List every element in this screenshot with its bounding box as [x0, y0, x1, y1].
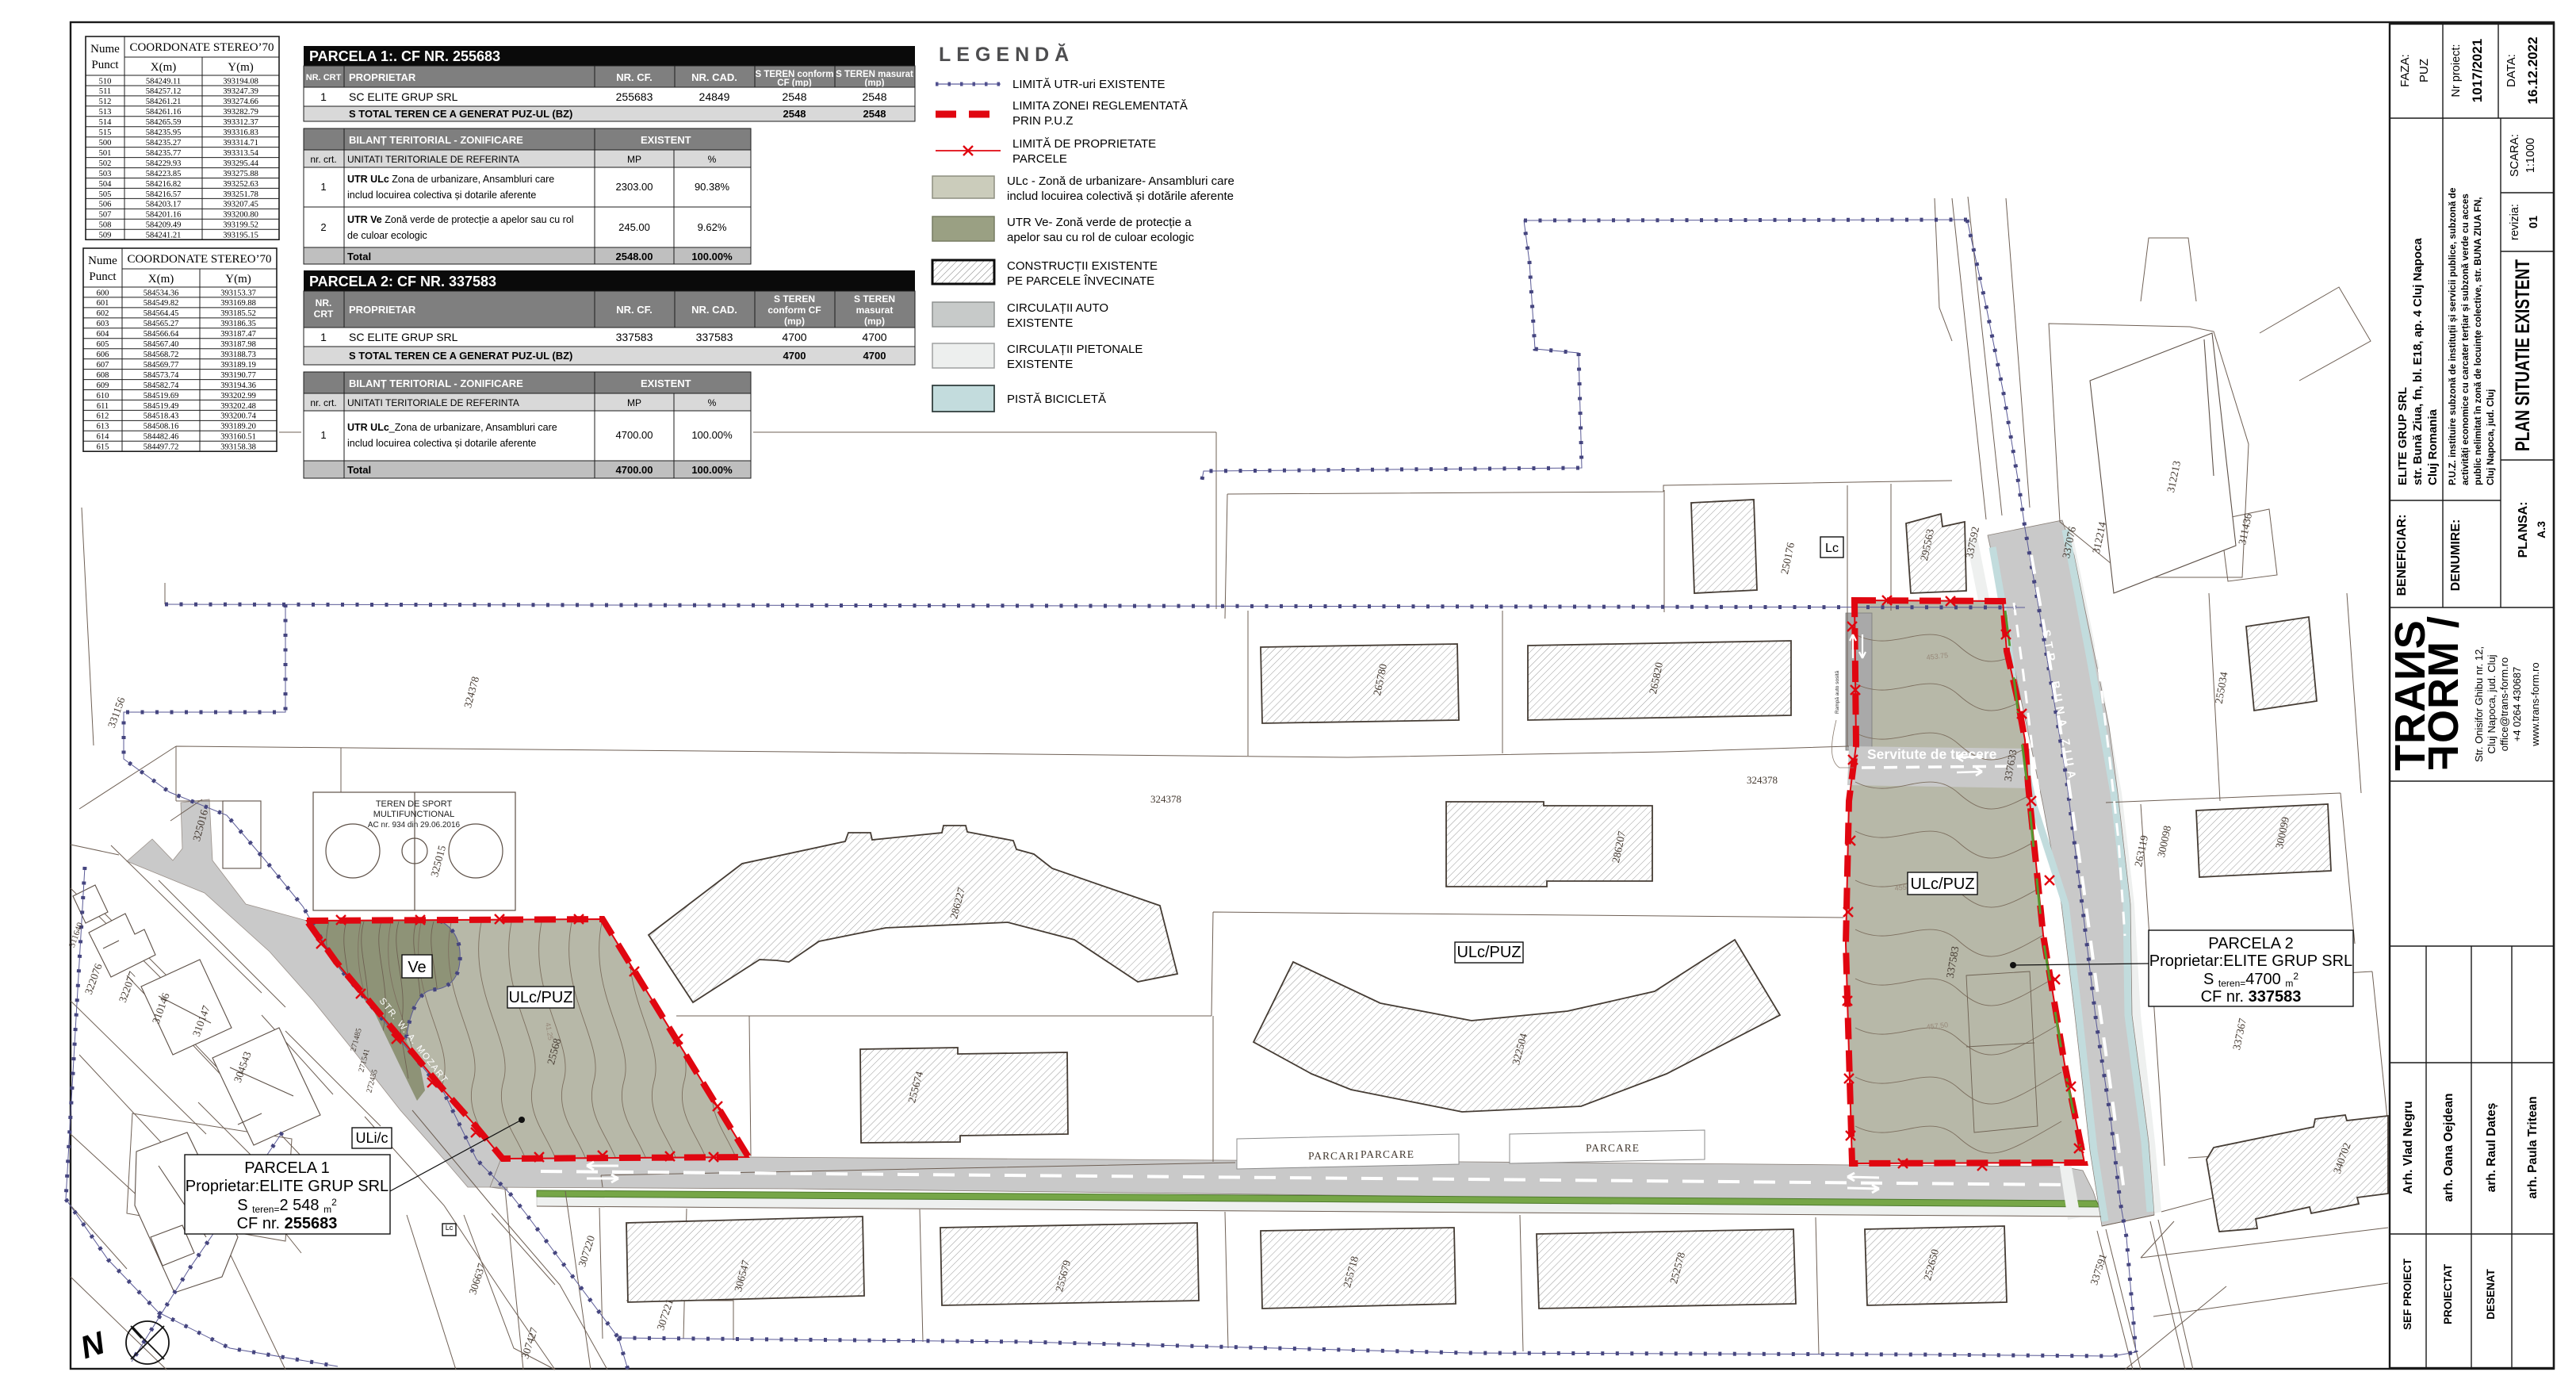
svg-text:SC ELITE GRUP SRL: SC ELITE GRUP SRL	[349, 331, 458, 343]
svg-text:584261.21: 584261.21	[146, 98, 182, 106]
svg-text:nr. crt.: nr. crt.	[310, 154, 336, 165]
svg-text:505: 505	[99, 190, 112, 199]
svg-text:UTR ULc_Zona de urbanizare, An: UTR ULc_Zona de urbanizare, Ansambluri c…	[347, 422, 557, 433]
svg-text:4700: 4700	[782, 331, 806, 343]
svg-text:2: 2	[320, 221, 326, 233]
svg-text:S TOTAL TEREN CE A GENERAT PUZ: S TOTAL TEREN CE A GENERAT PUZ-UL (BZ)	[349, 350, 572, 362]
svg-text:Total: Total	[347, 251, 371, 262]
svg-text:584235.27: 584235.27	[146, 139, 182, 148]
svg-text:4700: 4700	[863, 350, 886, 362]
svg-text:Nume: Nume	[90, 43, 120, 56]
svg-text:393202.99: 393202.99	[220, 392, 256, 400]
svg-text:2548: 2548	[782, 90, 806, 103]
svg-text:2548: 2548	[783, 108, 806, 120]
svg-text:610: 610	[97, 392, 109, 400]
svg-text:UNITATI TERITORIALE DE REFERIN: UNITATI TERITORIALE DE REFERINTA	[347, 154, 519, 165]
svg-text:CIRCULAȚII AUTO: CIRCULAȚII AUTO	[1007, 301, 1108, 315]
svg-text:584519.49: 584519.49	[144, 402, 179, 411]
svg-text:EXISTENTE: EXISTENTE	[1007, 358, 1073, 371]
svg-text:masurat: masurat	[856, 305, 894, 316]
svg-text:conform CF: conform CF	[767, 305, 821, 316]
svg-text:P.U.Z. instituire subzonă de i: P.U.Z. instituire subzonă de instituții …	[2447, 187, 2458, 485]
svg-text:01: 01	[2528, 216, 2540, 228]
svg-text:245.00: 245.00	[618, 221, 650, 233]
svg-text:255683: 255683	[616, 90, 653, 103]
svg-text:393160.51: 393160.51	[220, 433, 256, 442]
svg-text:apelor sau cu rol de culoar ec: apelor sau cu rol de culoar ecologic	[1007, 231, 1194, 244]
svg-text:CRT: CRT	[314, 308, 334, 320]
svg-text:513: 513	[99, 108, 112, 117]
svg-text:584249.11: 584249.11	[146, 77, 181, 86]
svg-text:606: 606	[97, 351, 109, 359]
svg-text:90.38%: 90.38%	[695, 181, 730, 193]
svg-text:Lc: Lc	[1825, 542, 1839, 555]
svg-text:393186.35: 393186.35	[220, 320, 256, 328]
svg-text:office@trans-form.ro: office@trans-form.ro	[2498, 657, 2510, 751]
svg-text:601: 601	[97, 299, 109, 308]
svg-text:393202.48: 393202.48	[220, 402, 256, 411]
svg-text:LEGENDĂ: LEGENDĂ	[939, 43, 1074, 66]
svg-text:LIMITĂ UTR-uri EXISTENTE: LIMITĂ UTR-uri EXISTENTE	[1012, 78, 1166, 91]
svg-text:BENEFICIAR:: BENEFICIAR:	[2395, 514, 2409, 596]
svg-text:393313.54: 393313.54	[223, 149, 258, 158]
svg-text:CF nr. 255683: CF nr. 255683	[237, 1215, 338, 1232]
svg-text:584482.46: 584482.46	[144, 433, 179, 442]
svg-text:DATA:: DATA:	[2505, 54, 2518, 87]
svg-text:ULc - Zonă de urbanizare- Ansa: ULc - Zonă de urbanizare- Ansambluri car…	[1007, 174, 1234, 188]
svg-text:PROPRIETAR: PROPRIETAR	[349, 71, 416, 83]
svg-text:includ locuirea colectiva și d: includ locuirea colectiva și dotarile af…	[347, 438, 536, 449]
svg-text:LIMITA ZONEI REGLEMENTATĂ: LIMITA ZONEI REGLEMENTATĂ	[1012, 99, 1188, 113]
svg-text:PARCELA 1:. CF NR. 255683: PARCELA 1:. CF NR. 255683	[309, 48, 500, 64]
svg-text:S teren=2 548 m2: S teren=2 548 m2	[237, 1197, 337, 1215]
svg-text:Punct: Punct	[91, 59, 119, 71]
svg-text:584508.16: 584508.16	[144, 423, 179, 431]
svg-text:393200.74: 393200.74	[220, 412, 256, 421]
svg-text:PARCARE: PARCARE	[1586, 1142, 1640, 1154]
svg-text:str. Bună Ziua, fn, bl. E18, a: str. Bună Ziua, fn, bl. E18, ap. 4 Cluj …	[2411, 238, 2425, 485]
svg-text:PARCELE: PARCELE	[1012, 152, 1067, 166]
svg-text:100.00%: 100.00%	[691, 429, 733, 441]
svg-text:1: 1	[320, 181, 326, 193]
svg-text:584497.72: 584497.72	[144, 443, 179, 452]
svg-text:TEREN DE SPORT: TEREN DE SPORT	[376, 799, 453, 809]
svg-text:SEF PROIECT: SEF PROIECT	[2402, 1258, 2413, 1330]
svg-text:337583: 337583	[696, 331, 733, 343]
svg-text:ORM /: ORM /	[2420, 615, 2467, 743]
svg-text:393189.20: 393189.20	[220, 423, 256, 431]
svg-text:arh. Paula Tritean: arh. Paula Tritean	[2526, 1096, 2540, 1198]
svg-text:Proprietar:ELITE GRUP SRL: Proprietar:ELITE GRUP SRL	[2149, 952, 2352, 970]
svg-text:PARCELA 2: CF NR. 337583: PARCELA 2: CF NR. 337583	[309, 274, 496, 289]
svg-text:(mp): (mp)	[865, 79, 885, 88]
svg-text:584241.21: 584241.21	[146, 232, 182, 240]
svg-text:PUZ: PUZ	[2417, 59, 2431, 82]
svg-text:2548.00: 2548.00	[616, 251, 653, 262]
svg-text:393312.37: 393312.37	[223, 118, 258, 127]
svg-text:Cluj Romania: Cluj Romania	[2426, 408, 2440, 485]
svg-text:608: 608	[97, 371, 109, 380]
svg-text:393169.88: 393169.88	[220, 299, 256, 308]
svg-text:9.62%: 9.62%	[698, 221, 727, 233]
svg-text:393189.19: 393189.19	[220, 361, 256, 370]
svg-text:511: 511	[99, 87, 111, 96]
svg-text:PLANSA:: PLANSA:	[2517, 501, 2530, 558]
svg-text:607: 607	[97, 361, 109, 370]
svg-text:4700.00: 4700.00	[616, 464, 653, 476]
svg-text:NR.: NR.	[316, 297, 332, 308]
svg-text:584265.59: 584265.59	[146, 118, 182, 127]
svg-text:A.3: A.3	[2535, 521, 2547, 538]
svg-text:PROPRIETAR: PROPRIETAR	[349, 304, 416, 316]
svg-text:CIRCULAȚII PIETONALE: CIRCULAȚII PIETONALE	[1007, 343, 1143, 356]
svg-text:(mp): (mp)	[784, 316, 805, 327]
svg-text:393199.52: 393199.52	[223, 221, 258, 230]
svg-text:507: 507	[99, 211, 112, 220]
svg-text:PARCELA 1: PARCELA 1	[244, 1159, 329, 1177]
svg-text:324378: 324378	[1150, 793, 1181, 805]
svg-text:BILANȚ TERITORIAL - ZONIFICARE: BILANȚ TERITORIAL - ZONIFICARE	[349, 134, 523, 146]
svg-text:SC ELITE GRUP SRL: SC ELITE GRUP SRL	[349, 90, 458, 103]
svg-text:603: 603	[97, 320, 109, 328]
svg-text:EXISTENTE: EXISTENTE	[1007, 316, 1073, 330]
svg-text:NR. CF.: NR. CF.	[616, 304, 653, 316]
svg-text:584235.95: 584235.95	[146, 128, 182, 137]
svg-text:600: 600	[97, 289, 109, 297]
svg-text:584201.16: 584201.16	[146, 211, 182, 220]
svg-text:UTR Ve Zonă verde de protecție: UTR Ve Zonă verde de protecție a apelor …	[347, 214, 574, 225]
svg-text:584564.45: 584564.45	[144, 309, 179, 318]
svg-text:Total: Total	[347, 464, 371, 476]
svg-text:584565.27: 584565.27	[144, 320, 179, 328]
svg-text:584569.77: 584569.77	[144, 361, 179, 370]
svg-text:100.00%: 100.00%	[691, 251, 733, 262]
svg-text:public nelimitat în zonă de lo: public nelimitat în zonă de locuințe col…	[2472, 197, 2483, 485]
svg-text:584582.74: 584582.74	[144, 381, 179, 390]
svg-text:de culoar ecologic: de culoar ecologic	[347, 230, 427, 241]
svg-text:CONSTRUCȚII EXISTENTE: CONSTRUCȚII EXISTENTE	[1007, 259, 1158, 273]
svg-text:(mp): (mp)	[864, 316, 885, 327]
svg-text:503: 503	[99, 170, 112, 178]
svg-text:1:1000: 1:1000	[2524, 138, 2537, 173]
svg-text:508: 508	[99, 221, 112, 230]
svg-text:X(m): X(m)	[151, 61, 177, 74]
svg-text:MP: MP	[627, 397, 641, 408]
svg-text:revizia:: revizia:	[2509, 204, 2521, 240]
svg-text:584519.69: 584519.69	[144, 392, 179, 400]
svg-text:SCARA:: SCARA:	[2509, 134, 2521, 177]
svg-text:605: 605	[97, 340, 109, 349]
svg-text:504: 504	[99, 180, 113, 189]
svg-text:Y(m): Y(m)	[228, 61, 254, 74]
svg-text:UNITATI TERITORIALE DE REFERIN: UNITATI TERITORIALE DE REFERINTA	[347, 397, 519, 408]
svg-text:CF (mp): CF (mp)	[777, 79, 812, 88]
svg-text:4700.00: 4700.00	[616, 429, 653, 441]
svg-text:393188.73: 393188.73	[220, 351, 256, 359]
svg-text:584216.82: 584216.82	[146, 180, 182, 189]
svg-text:393194.08: 393194.08	[223, 77, 258, 86]
svg-text:613: 613	[97, 423, 109, 431]
svg-text:100.00%: 100.00%	[691, 464, 733, 476]
svg-text:ULi/c: ULi/c	[355, 1130, 388, 1146]
svg-text:4700: 4700	[862, 331, 886, 343]
svg-text:Cluj Napoca, jud. Cluj: Cluj Napoca, jud. Cluj	[2485, 389, 2496, 485]
svg-text:ULc/PUZ: ULc/PUZ	[508, 989, 572, 1006]
svg-text:F: F	[2420, 745, 2467, 771]
svg-text:393194.36: 393194.36	[220, 381, 256, 390]
svg-text:Ve: Ve	[408, 959, 426, 976]
svg-text:BILANȚ TERITORIAL - ZONIFICARE: BILANȚ TERITORIAL - ZONIFICARE	[349, 377, 523, 389]
svg-text:NR. CF.: NR. CF.	[616, 71, 653, 83]
svg-text:609: 609	[97, 381, 109, 390]
svg-text:393275.88: 393275.88	[223, 170, 258, 178]
svg-text:584229.93: 584229.93	[146, 159, 182, 168]
svg-text:NR. CRT: NR. CRT	[306, 73, 342, 82]
svg-text:4700: 4700	[783, 350, 806, 362]
svg-text:393190.77: 393190.77	[220, 371, 256, 380]
svg-text:UTR Ve- Zonă verde de protecți: UTR Ve- Zonă verde de protecție a	[1007, 216, 1192, 229]
svg-text:393282.79: 393282.79	[223, 108, 258, 117]
svg-text:ELITE GRUP SRL: ELITE GRUP SRL	[2396, 387, 2409, 485]
svg-text:506: 506	[99, 201, 112, 209]
svg-text:2548: 2548	[863, 108, 886, 120]
svg-text:FAZA:: FAZA:	[2398, 54, 2412, 87]
svg-text:612: 612	[97, 412, 109, 421]
svg-text:2303.00: 2303.00	[616, 181, 653, 193]
svg-text:EXISTENT: EXISTENT	[641, 134, 691, 146]
svg-text:includ locuirea colectivă și d: includ locuirea colectivă și dotările af…	[1007, 190, 1234, 203]
svg-text:Nume: Nume	[88, 255, 117, 267]
svg-text:S TOTAL TEREN CE A GENERAT PUZ: S TOTAL TEREN CE A GENERAT PUZ-UL (BZ)	[349, 108, 572, 120]
svg-text:393252.63: 393252.63	[223, 180, 258, 189]
svg-text:24849: 24849	[699, 90, 730, 103]
svg-text:393207.45: 393207.45	[223, 201, 258, 209]
svg-text:Lc: Lc	[446, 1224, 454, 1232]
svg-text:510: 510	[99, 77, 112, 86]
svg-text:COORDONATE STEREO’70: COORDONATE STEREO’70	[129, 41, 274, 54]
svg-text:X(m): X(m)	[148, 273, 174, 285]
svg-text:512: 512	[99, 98, 112, 106]
svg-text:584257.12: 584257.12	[146, 87, 182, 96]
svg-text:393195.15: 393195.15	[223, 232, 258, 240]
svg-text:584216.57: 584216.57	[146, 190, 182, 199]
svg-text:Cluj Napoca, jud. Cluj: Cluj Napoca, jud. Cluj	[2486, 654, 2498, 753]
svg-text:2548: 2548	[862, 90, 886, 103]
svg-text:DESENAT: DESENAT	[2485, 1268, 2497, 1319]
svg-text:584573.74: 584573.74	[144, 371, 179, 380]
svg-text:PE PARCELE ÎNVECINATE: PE PARCELE ÎNVECINATE	[1007, 274, 1154, 288]
svg-text:393316.83: 393316.83	[223, 128, 258, 137]
svg-text:393185.52: 393185.52	[220, 309, 256, 318]
svg-text:1: 1	[320, 429, 326, 441]
svg-text:+4 0264 430687: +4 0264 430687	[2511, 667, 2523, 741]
svg-text:509: 509	[99, 232, 112, 240]
svg-text:S TEREN: S TEREN	[854, 293, 895, 305]
svg-text:584567.40: 584567.40	[144, 340, 179, 349]
svg-text:EXISTENT: EXISTENT	[641, 377, 691, 389]
svg-text:324378: 324378	[1747, 774, 1778, 786]
svg-text:584568.72: 584568.72	[144, 351, 179, 359]
svg-text:515: 515	[99, 128, 112, 137]
svg-text:615: 615	[97, 443, 109, 452]
svg-text:CF nr. 337583: CF nr. 337583	[2201, 988, 2302, 1006]
svg-text:393187.47: 393187.47	[220, 330, 256, 339]
svg-text:584223.85: 584223.85	[146, 170, 182, 178]
svg-text:Str. Onisifor Ghibu nr. 12,: Str. Onisifor Ghibu nr. 12,	[2473, 646, 2485, 762]
svg-text:501: 501	[99, 149, 112, 158]
svg-text:16.12.2022: 16.12.2022	[2525, 36, 2540, 104]
svg-text:584209.49: 584209.49	[146, 221, 182, 230]
svg-text:584534.36: 584534.36	[144, 289, 179, 297]
svg-text:PARCARI: PARCARI	[1308, 1150, 1359, 1162]
svg-text:includ locuirea colectiva și d: includ locuirea colectiva și dotarile af…	[347, 190, 536, 201]
svg-text:1: 1	[320, 331, 327, 343]
svg-text:393274.66: 393274.66	[223, 98, 258, 106]
svg-text:584203.17: 584203.17	[146, 201, 182, 209]
svg-text:AC nr. 934 din 29.06.2016: AC nr. 934 din 29.06.2016	[368, 821, 461, 830]
svg-text:1017/2021: 1017/2021	[2470, 39, 2485, 102]
svg-text:Arh. Vlad Negru: Arh. Vlad Negru	[2402, 1101, 2415, 1194]
svg-text:584518.43: 584518.43	[144, 412, 179, 421]
svg-text:Nr proiect:: Nr proiect:	[2450, 44, 2463, 98]
svg-text:PARCELA 2: PARCELA 2	[2208, 935, 2293, 952]
svg-text:584566.64: 584566.64	[144, 330, 179, 339]
svg-text:Proprietar:ELITE GRUP SRL: Proprietar:ELITE GRUP SRL	[186, 1178, 389, 1195]
svg-text:Y(m): Y(m)	[225, 273, 251, 285]
svg-text:%: %	[708, 397, 717, 408]
svg-text:Servitute de trecere: Servitute de trecere	[1867, 746, 1997, 762]
svg-text:Punct: Punct	[89, 270, 117, 283]
svg-text:584235.77: 584235.77	[146, 149, 182, 158]
svg-text:arh. Oana Oejdean: arh. Oana Oejdean	[2442, 1094, 2455, 1202]
svg-text:S teren=4700 m2: S teren=4700 m2	[2203, 971, 2298, 989]
svg-text:Rampă auto sosită: Rampă auto sosită	[1835, 670, 1840, 714]
svg-text:1: 1	[320, 90, 327, 103]
svg-text:PRIN P.U.Z: PRIN P.U.Z	[1012, 114, 1073, 128]
svg-text:502: 502	[99, 159, 112, 168]
svg-text:ULc/PUZ: ULc/PUZ	[1456, 944, 1521, 961]
svg-text:500: 500	[99, 139, 112, 148]
svg-text:393158.38: 393158.38	[220, 443, 256, 452]
svg-text:611: 611	[97, 402, 109, 411]
svg-text:584549.82: 584549.82	[144, 299, 179, 308]
svg-text:MP: MP	[627, 154, 641, 165]
svg-text:PLAN SITUATIE EXISTENT: PLAN SITUATIE EXISTENT	[2512, 259, 2534, 451]
svg-text:PROIECTAT: PROIECTAT	[2442, 1263, 2454, 1324]
svg-text:514: 514	[99, 118, 113, 127]
svg-text:arh. Raul Dateș: arh. Raul Dateș	[2485, 1103, 2498, 1193]
svg-text:COORDONATE STEREO’70: COORDONATE STEREO’70	[127, 253, 271, 266]
svg-text:614: 614	[97, 433, 110, 442]
svg-text:www.trans-form.ro: www.trans-form.ro	[2529, 662, 2541, 746]
svg-text:S TEREN: S TEREN	[774, 293, 815, 305]
svg-text:MULTIFUNCTIONAL: MULTIFUNCTIONAL	[373, 810, 454, 819]
svg-text:602: 602	[97, 309, 109, 318]
svg-text:UTR ULc Zona de urbanizare, An: UTR ULc Zona de urbanizare, Ansambluri c…	[347, 174, 554, 185]
svg-text:604: 604	[97, 330, 110, 339]
svg-text:PARCARE: PARCARE	[1361, 1148, 1414, 1160]
svg-text:393200.80: 393200.80	[223, 211, 258, 220]
svg-text:PISTĂ BICICLETĂ: PISTĂ BICICLETĂ	[1007, 393, 1106, 406]
svg-text:393295.44: 393295.44	[223, 159, 258, 168]
svg-text:393153.37: 393153.37	[220, 289, 256, 297]
svg-text:584261.16: 584261.16	[146, 108, 182, 117]
svg-text:activități economice cu carcat: activități economice cu carcater terțiar…	[2459, 194, 2471, 485]
svg-text:%: %	[708, 154, 717, 165]
svg-text:LIMITĂ DE PROPRIETATE: LIMITĂ DE PROPRIETATE	[1012, 137, 1156, 151]
svg-text:393314.71: 393314.71	[223, 139, 258, 148]
svg-text:393247.39: 393247.39	[223, 87, 258, 96]
svg-text:DENUMIRE:: DENUMIRE:	[2449, 519, 2463, 592]
svg-text:393187.98: 393187.98	[220, 340, 256, 349]
svg-text:nr. crt.: nr. crt.	[310, 397, 336, 408]
svg-text:NR. CAD.: NR. CAD.	[691, 71, 737, 83]
svg-text:NR. CAD.: NR. CAD.	[691, 304, 737, 316]
svg-text:337583: 337583	[616, 331, 653, 343]
svg-text:ULc/PUZ: ULc/PUZ	[1910, 876, 1974, 893]
svg-text:393251.78: 393251.78	[223, 190, 258, 199]
